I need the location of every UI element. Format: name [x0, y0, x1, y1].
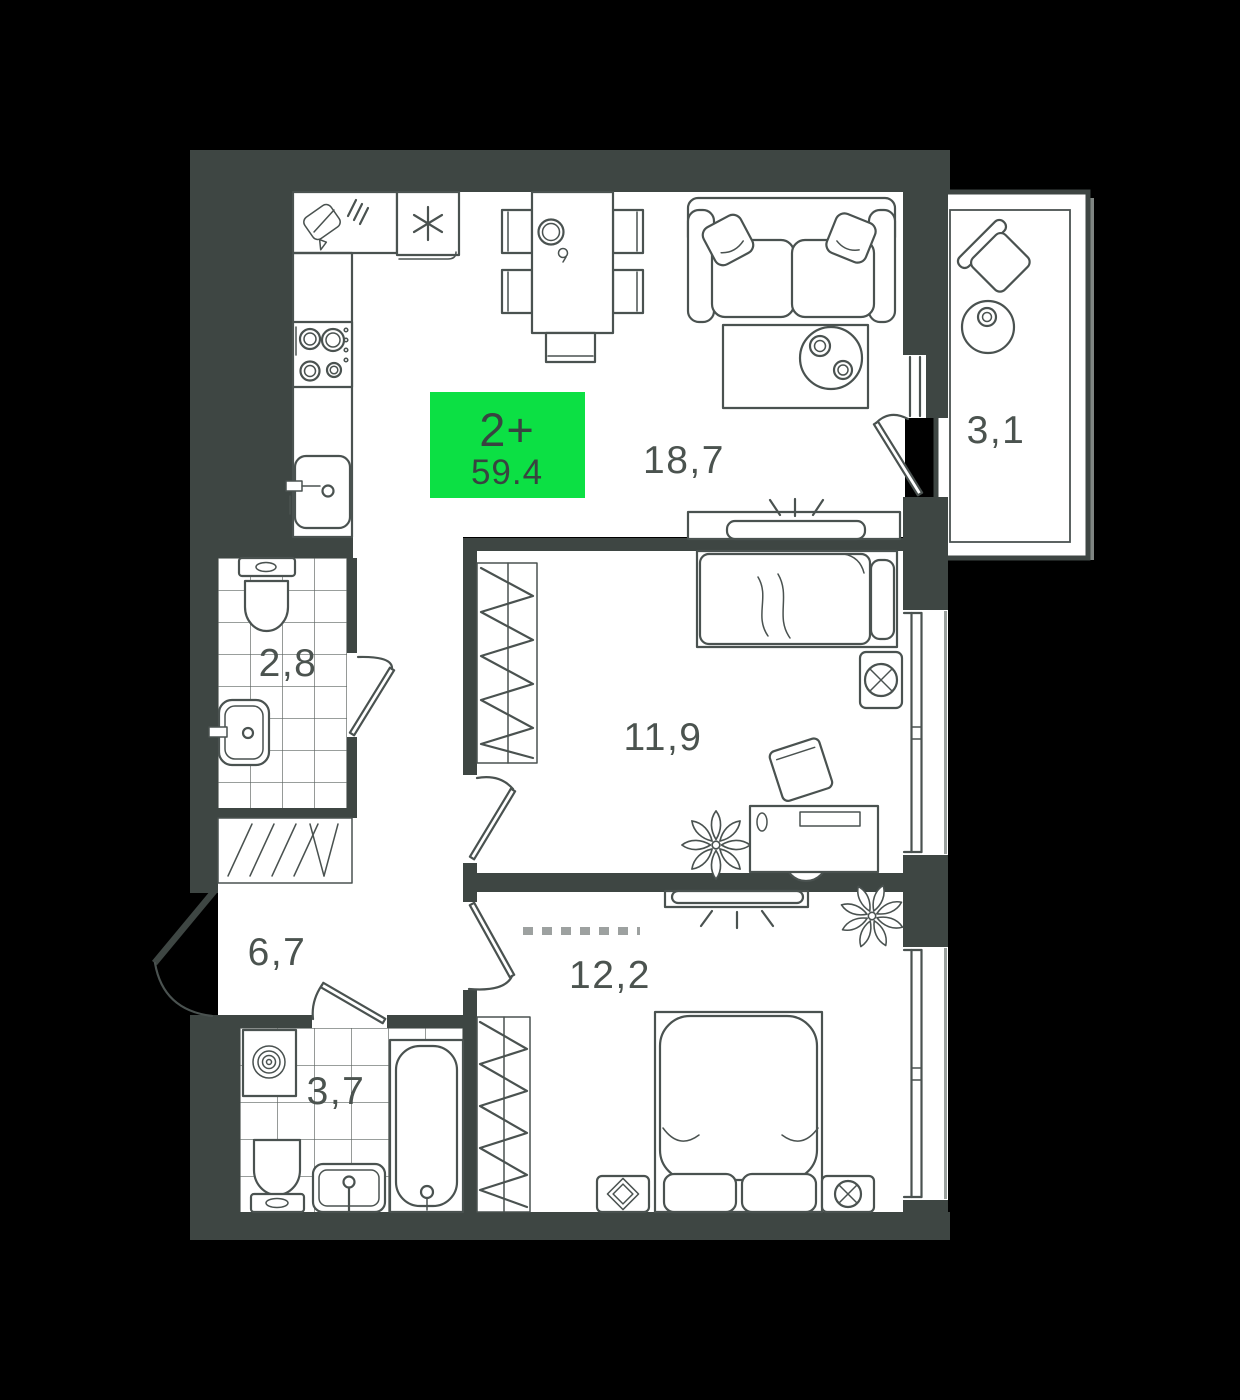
label-bedroom-1: 11,9	[623, 716, 702, 759]
label-hallway: 6,7	[248, 931, 307, 974]
washing-machine	[243, 1030, 296, 1096]
dining-table	[532, 192, 613, 333]
desk	[750, 806, 878, 881]
closet	[218, 818, 352, 883]
nightstand	[822, 1176, 874, 1212]
label-bathroom-big: 3,7	[307, 1070, 366, 1113]
window-balcony	[903, 355, 926, 418]
dining-chair	[502, 270, 532, 313]
stove	[293, 322, 352, 387]
window-bedroom-2	[903, 947, 948, 1200]
floor-plan-svg: 18,7 3,1 2,8 11,9 6,7 12,2 3,7 2+ 59.4	[0, 0, 1240, 1400]
dining-chair	[502, 210, 532, 253]
area-badge: 2+ 59.4	[430, 392, 585, 498]
nightstand	[597, 1176, 649, 1212]
badge-rooms-count: 2+	[479, 403, 535, 456]
dining-chair	[613, 210, 643, 253]
badge-area-value: 59.4	[471, 453, 543, 492]
label-living-kitchen: 18,7	[643, 439, 725, 482]
sofa	[688, 198, 895, 322]
kitchen-sink	[286, 456, 350, 528]
label-bathroom-small: 2,8	[259, 642, 318, 685]
balcony-table	[962, 301, 1014, 353]
coffee-table	[800, 327, 862, 389]
bathtub	[390, 1040, 463, 1212]
bed-double	[655, 1012, 822, 1212]
label-balcony: 3,1	[967, 409, 1026, 452]
dining-chair	[546, 333, 595, 362]
balcony	[936, 192, 1094, 560]
bed-single	[697, 551, 897, 647]
window-bedroom-1	[903, 610, 948, 855]
floor-plan-canvas: 18,7 3,1 2,8 11,9 6,7 12,2 3,7 2+ 59.4	[0, 0, 1240, 1400]
dining-chair	[613, 270, 643, 313]
toilet	[251, 1140, 304, 1212]
fridge-icon	[397, 192, 459, 259]
label-bedroom-2: 12,2	[569, 954, 651, 997]
bathroom-sink	[313, 1164, 385, 1212]
ac-unit-icon	[860, 652, 902, 708]
entrance-door	[152, 889, 217, 1016]
